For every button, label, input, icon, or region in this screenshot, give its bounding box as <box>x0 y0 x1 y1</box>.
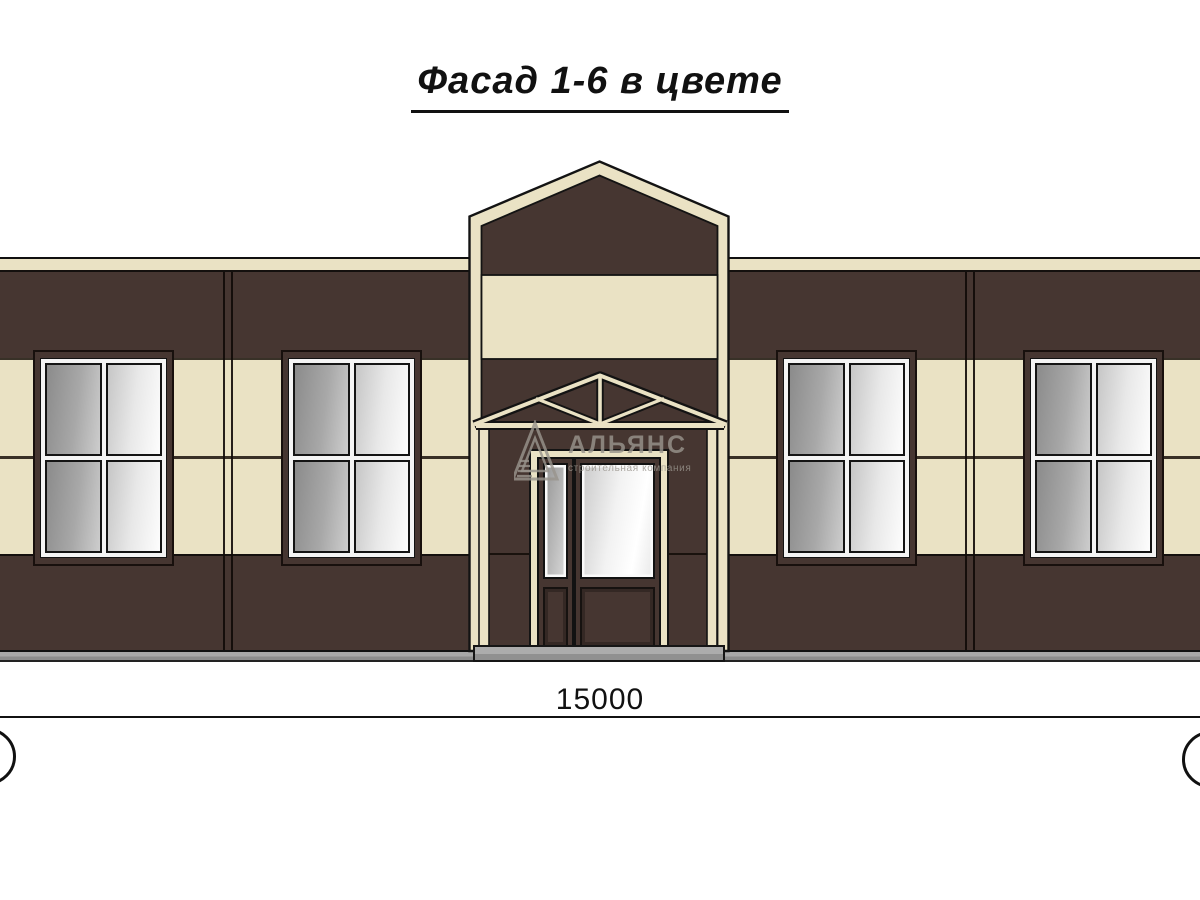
door-opening <box>537 457 661 648</box>
dimension-label: 15000 <box>0 683 1200 717</box>
window-1 <box>33 350 174 566</box>
porch-post-right <box>707 424 717 651</box>
door-glass <box>580 463 655 579</box>
door-panel <box>580 587 655 647</box>
grid-bubble-left <box>0 728 16 785</box>
window-frame <box>783 358 910 558</box>
door-leaf-right <box>574 457 661 648</box>
window-pane <box>106 460 163 553</box>
title-block: Фасад 1-6 в цвете <box>0 60 1200 113</box>
window-pane <box>1096 460 1153 553</box>
panel-seam-vertical-right <box>965 272 975 650</box>
window-4 <box>1023 350 1164 566</box>
window-pane <box>1035 363 1092 456</box>
window-pane <box>1096 363 1153 456</box>
door-glass <box>543 463 568 579</box>
window-frame <box>1030 358 1157 558</box>
window-pane <box>354 363 411 456</box>
facade-drawing: Фасад 1-6 в цвете <box>0 0 1200 900</box>
window-pane <box>293 363 350 456</box>
window-pane <box>45 460 102 553</box>
window-3 <box>776 350 917 566</box>
window-pane <box>849 460 906 553</box>
window-pane <box>788 460 845 553</box>
grid-bubble-right <box>1182 731 1200 788</box>
porch-slab <box>473 645 725 662</box>
drawing-title: Фасад 1-6 в цвете <box>411 60 788 113</box>
porch-post-left <box>479 424 489 651</box>
window-pane <box>45 363 102 456</box>
door-leaf-left <box>537 457 574 648</box>
window-pane <box>106 363 163 456</box>
panel-seam-vertical-left <box>223 272 233 650</box>
window-2 <box>281 350 422 566</box>
window-pane <box>293 460 350 553</box>
door-panel <box>543 587 568 647</box>
window-frame <box>40 358 167 558</box>
window-frame <box>288 358 415 558</box>
door-frame <box>529 449 669 650</box>
window-pane <box>788 363 845 456</box>
portal-accent-band <box>482 275 718 359</box>
window-pane <box>1035 460 1092 553</box>
dimension-line <box>0 716 1200 718</box>
window-pane <box>849 363 906 456</box>
window-pane <box>354 460 411 553</box>
